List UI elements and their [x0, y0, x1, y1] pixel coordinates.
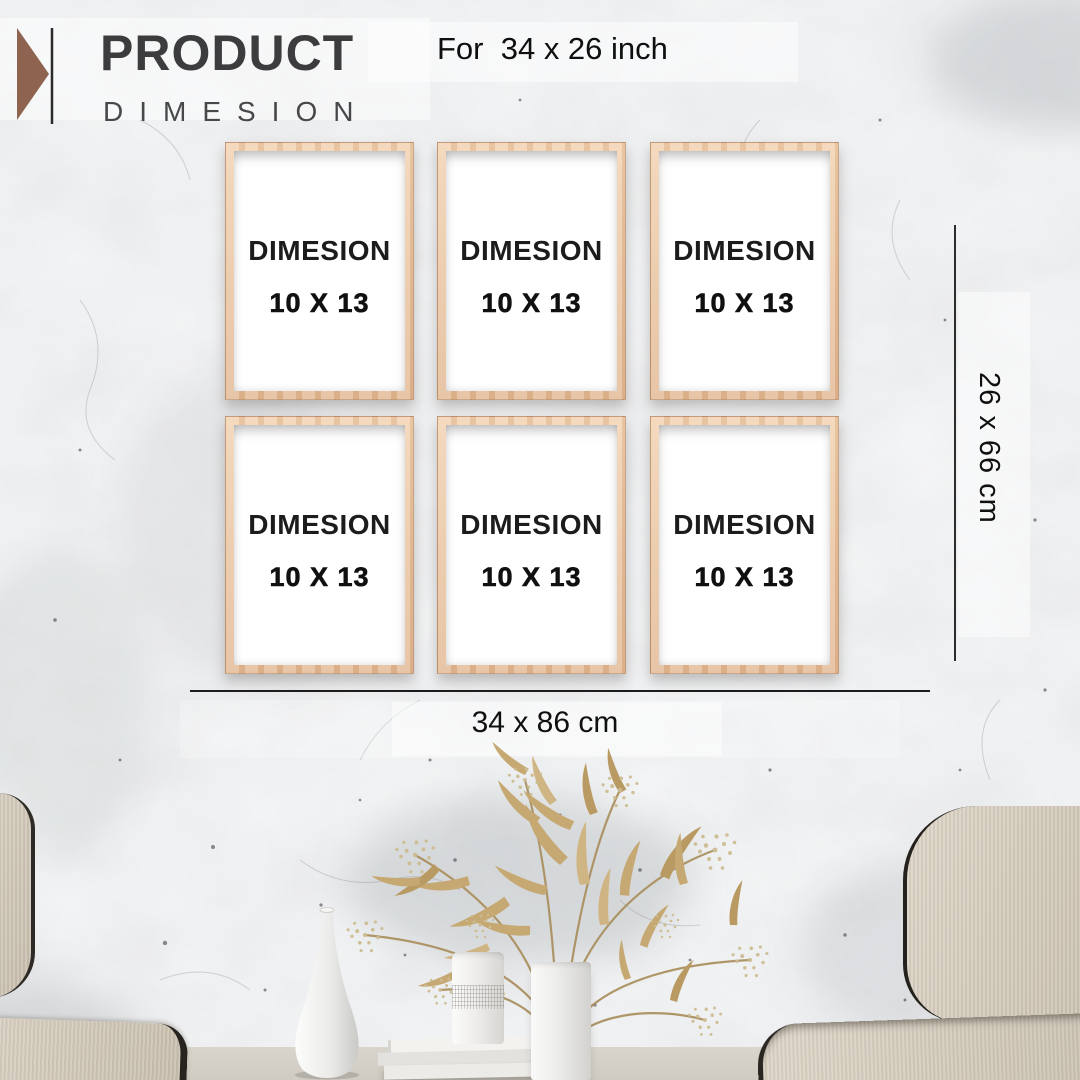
poster-mat: DIMESION 10 X 13	[659, 151, 830, 391]
left-chair-back	[0, 793, 35, 998]
poster-frame: DIMESION 10 X 13	[650, 142, 839, 400]
vertical-dimension-label: 26 x 66 cm	[972, 372, 1005, 524]
frame-dimension-label: DIMESION	[673, 509, 815, 541]
page-subtitle: DIMESION	[103, 96, 369, 128]
poster-frame: DIMESION 10 X 13	[225, 416, 414, 674]
frame-dimension-label: DIMESION	[460, 235, 602, 267]
page-title: PRODUCT	[100, 24, 354, 82]
frame-size-label: 10 X 13	[694, 562, 794, 593]
poster-mat: DIMESION 10 X 13	[659, 425, 830, 665]
teardrop-vase	[282, 905, 372, 1080]
frame-size-label: 10 X 13	[481, 288, 581, 319]
ribbed-vase-band	[452, 985, 504, 1009]
frame-dimension-label: DIMESION	[248, 509, 390, 541]
poster-frame: DIMESION 10 X 13	[437, 142, 626, 400]
frame-size-label: 10 X 13	[269, 288, 369, 319]
size-note: For 34 x 26 inch	[437, 31, 668, 67]
poster-frame: DIMESION 10 X 13	[225, 142, 414, 400]
poster-mat: DIMESION 10 X 13	[234, 151, 405, 391]
frame-size-label: 10 X 13	[694, 288, 794, 319]
left-chair-seat	[0, 1016, 188, 1080]
poster-canvas: PRODUCT DIMESION For 34 x 26 inch DIMESI…	[0, 0, 1080, 1080]
ribbed-vase	[452, 952, 504, 1044]
poster-mat: DIMESION 10 X 13	[446, 425, 617, 665]
poster-frame: DIMESION 10 X 13	[437, 416, 626, 674]
poster-mat: DIMESION 10 X 13	[234, 425, 405, 665]
frame-size-label: 10 X 13	[269, 562, 369, 593]
horizontal-dimension-line	[190, 690, 930, 692]
right-chair-back	[903, 806, 1080, 1022]
frame-size-label: 10 X 13	[481, 562, 581, 593]
frame-dimension-label: DIMESION	[673, 235, 815, 267]
logo-arrow-icon	[0, 0, 70, 140]
frame-dimension-label: DIMESION	[460, 509, 602, 541]
vertical-dimension-line	[954, 225, 956, 661]
cylinder-vase	[531, 962, 591, 1080]
poster-frame: DIMESION 10 X 13	[650, 416, 839, 674]
frame-dimension-label: DIMESION	[248, 235, 390, 267]
poster-mat: DIMESION 10 X 13	[446, 151, 617, 391]
